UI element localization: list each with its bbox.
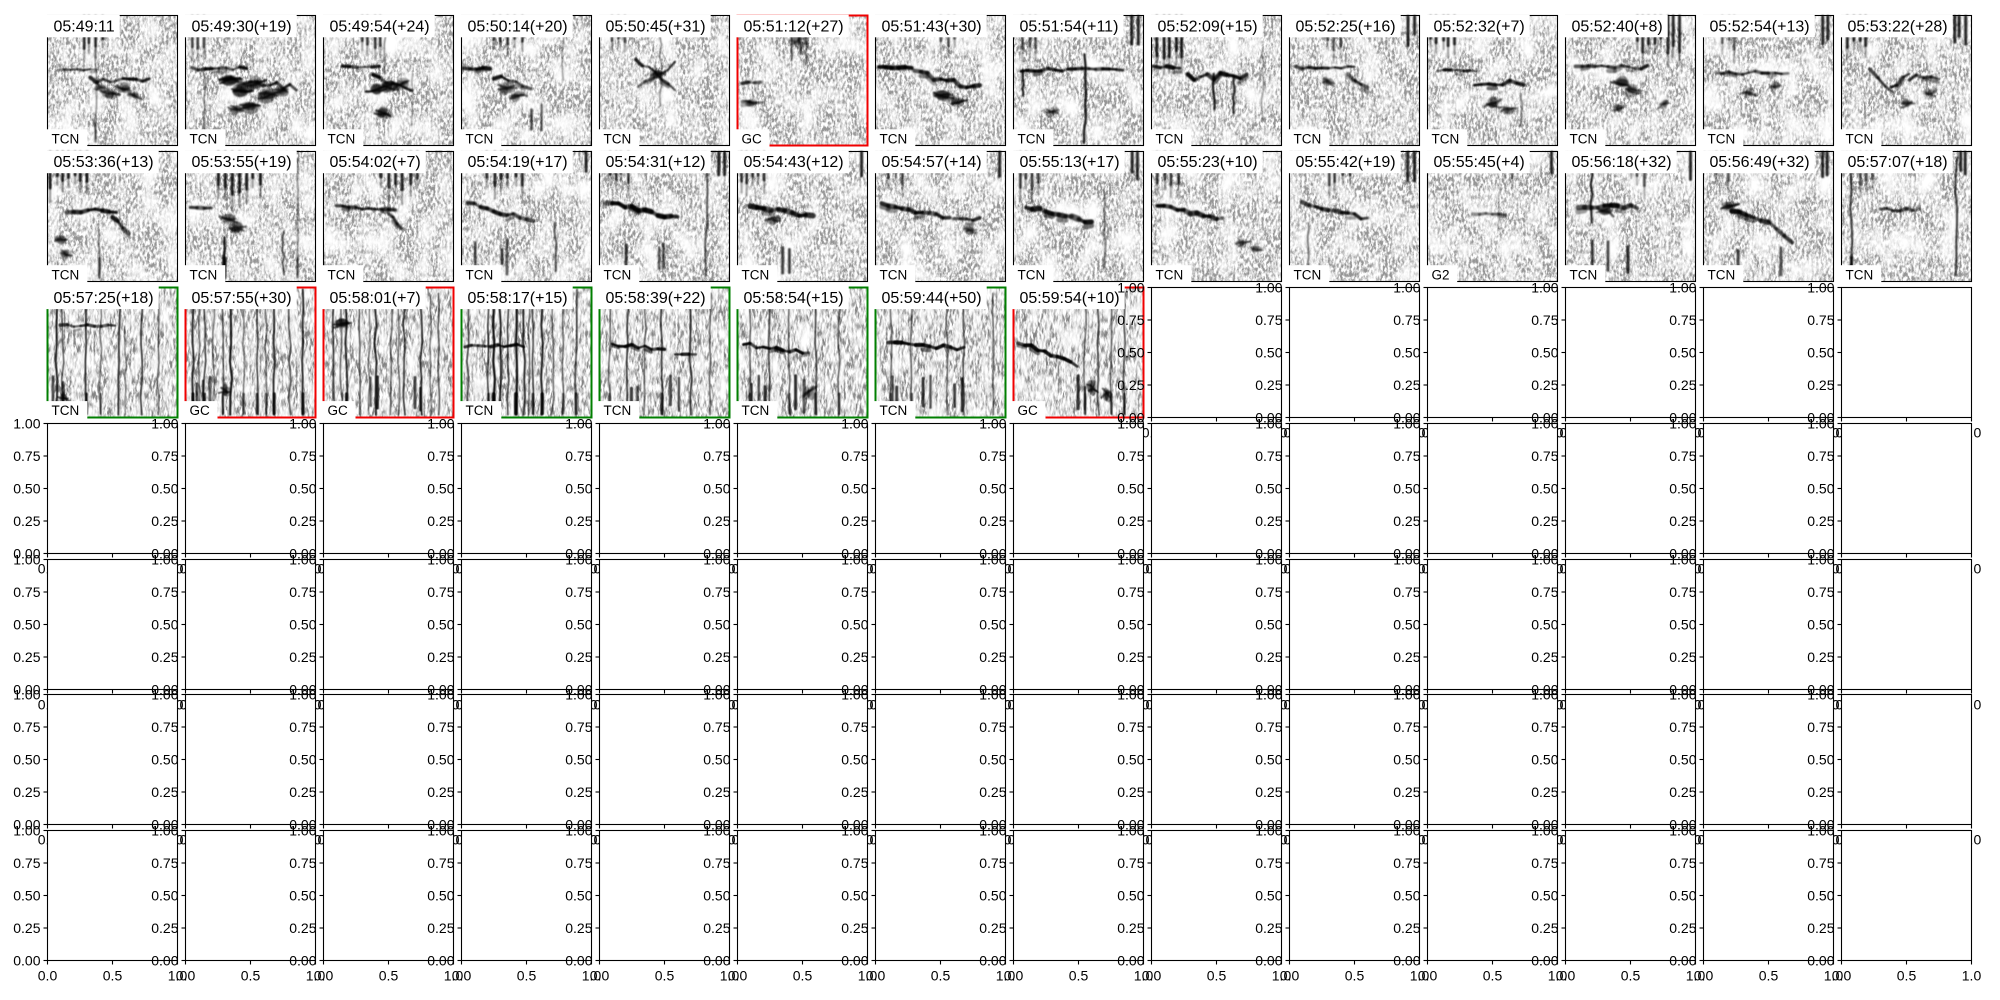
svg-text:0.5: 0.5 (241, 968, 261, 984)
svg-text:0.75: 0.75 (151, 855, 178, 871)
svg-text:0.75: 0.75 (565, 448, 592, 464)
svg-text:0.25: 0.25 (289, 649, 316, 665)
svg-text:1.00: 1.00 (1117, 552, 1144, 568)
svg-text:0.75: 0.75 (1807, 312, 1834, 328)
svg-text:TCN: TCN (328, 267, 356, 282)
svg-text:0.5: 0.5 (379, 968, 399, 984)
svg-text:0.25: 0.25 (13, 920, 40, 936)
svg-text:1.00: 1.00 (151, 416, 178, 432)
svg-text:0.75: 0.75 (1669, 448, 1696, 464)
svg-text:0.50: 0.50 (1393, 752, 1420, 768)
svg-text:0.50: 0.50 (703, 888, 730, 904)
svg-text:0.0: 0.0 (452, 968, 472, 984)
svg-text:0.25: 0.25 (979, 649, 1006, 665)
svg-text:0.00: 0.00 (13, 953, 40, 969)
svg-text:0.25: 0.25 (1117, 784, 1144, 800)
svg-text:TCN: TCN (1570, 267, 1598, 282)
svg-text:1.00: 1.00 (1255, 552, 1282, 568)
svg-text:0.00: 0.00 (1255, 953, 1282, 969)
svg-text:0.25: 0.25 (1117, 513, 1144, 529)
svg-text:0.25: 0.25 (565, 784, 592, 800)
svg-text:TCN: TCN (1294, 131, 1322, 146)
svg-text:TCN: TCN (1846, 267, 1874, 282)
svg-text:0.25: 0.25 (1393, 649, 1420, 665)
svg-text:1.00: 1.00 (289, 823, 316, 839)
svg-text:0.50: 0.50 (703, 752, 730, 768)
svg-text:0.75: 0.75 (979, 719, 1006, 735)
svg-text:0.50: 0.50 (151, 888, 178, 904)
svg-text:0.00: 0.00 (703, 953, 730, 969)
svg-text:0.0: 0.0 (1142, 968, 1162, 984)
svg-text:0.50: 0.50 (1669, 888, 1696, 904)
svg-text:0.75: 0.75 (703, 855, 730, 871)
svg-text:1.00: 1.00 (1393, 823, 1420, 839)
svg-text:0.75: 0.75 (427, 719, 454, 735)
svg-text:0.25: 0.25 (1807, 377, 1834, 393)
svg-text:0.25: 0.25 (841, 784, 868, 800)
svg-text:0.75: 0.75 (1255, 448, 1282, 464)
svg-text:1.00: 1.00 (979, 552, 1006, 568)
svg-text:0.00: 0.00 (1669, 953, 1696, 969)
svg-text:0.75: 0.75 (1807, 448, 1834, 464)
svg-text:0.75: 0.75 (979, 584, 1006, 600)
svg-text:0.25: 0.25 (13, 513, 40, 529)
svg-text:0.50: 0.50 (841, 888, 868, 904)
svg-text:1.00: 1.00 (1669, 280, 1696, 296)
svg-text:TCN: TCN (466, 131, 494, 146)
svg-text:0.50: 0.50 (841, 617, 868, 633)
svg-text:0.75: 0.75 (1531, 855, 1558, 871)
svg-text:TCN: TCN (1708, 131, 1736, 146)
svg-text:0.75: 0.75 (1669, 855, 1696, 871)
svg-text:0.5: 0.5 (1207, 968, 1227, 984)
svg-text:0.75: 0.75 (1531, 448, 1558, 464)
svg-text:0.75: 0.75 (289, 584, 316, 600)
svg-text:1.0: 1.0 (1962, 968, 1982, 984)
svg-text:0.50: 0.50 (1807, 481, 1834, 497)
svg-text:GC: GC (742, 131, 763, 146)
svg-text:0.75: 0.75 (841, 448, 868, 464)
svg-text:0.50: 0.50 (1669, 345, 1696, 361)
svg-text:1.00: 1.00 (1117, 823, 1144, 839)
svg-text:0.25: 0.25 (427, 784, 454, 800)
svg-text:0.75: 0.75 (1531, 719, 1558, 735)
svg-text:0.5: 0.5 (931, 968, 951, 984)
svg-text:0.00: 0.00 (1531, 953, 1558, 969)
svg-text:1.00: 1.00 (1807, 416, 1834, 432)
svg-text:0.50: 0.50 (151, 481, 178, 497)
svg-text:1.00: 1.00 (427, 552, 454, 568)
svg-text:TCN: TCN (1018, 267, 1046, 282)
svg-text:TCN: TCN (880, 403, 908, 418)
svg-text:0.50: 0.50 (151, 617, 178, 633)
svg-text:05:54:57(+14): 05:54:57(+14) (882, 154, 982, 171)
svg-text:0.75: 0.75 (1393, 719, 1420, 735)
svg-text:1.00: 1.00 (151, 687, 178, 703)
svg-text:0.0: 0.0 (176, 968, 196, 984)
svg-text:TCN: TCN (190, 267, 218, 282)
svg-text:0.50: 0.50 (1393, 481, 1420, 497)
svg-text:0.75: 0.75 (1255, 855, 1282, 871)
svg-text:TCN: TCN (466, 267, 494, 282)
svg-text:0.25: 0.25 (427, 513, 454, 529)
svg-text:0.75: 0.75 (1117, 719, 1144, 735)
svg-text:0.25: 0.25 (979, 920, 1006, 936)
svg-text:1.00: 1.00 (13, 416, 40, 432)
svg-text:0.75: 0.75 (13, 855, 40, 871)
svg-text:0.50: 0.50 (1669, 752, 1696, 768)
svg-text:0.50: 0.50 (1117, 888, 1144, 904)
svg-text:0.00: 0.00 (565, 953, 592, 969)
svg-text:0.25: 0.25 (151, 649, 178, 665)
svg-text:0.75: 0.75 (565, 719, 592, 735)
svg-text:05:53:36(+13): 05:53:36(+13) (54, 154, 154, 171)
svg-text:1.00: 1.00 (979, 823, 1006, 839)
svg-text:0.50: 0.50 (1531, 888, 1558, 904)
svg-text:0.75: 0.75 (565, 855, 592, 871)
svg-text:0.75: 0.75 (1255, 719, 1282, 735)
svg-text:1.00: 1.00 (1807, 552, 1834, 568)
svg-text:05:54:19(+17): 05:54:19(+17) (468, 154, 568, 171)
svg-text:05:55:42(+19): 05:55:42(+19) (1296, 154, 1396, 171)
svg-text:1.00: 1.00 (1393, 416, 1420, 432)
svg-text:1.00: 1.00 (841, 416, 868, 432)
svg-text:0.50: 0.50 (1669, 481, 1696, 497)
svg-text:TCN: TCN (1432, 131, 1460, 146)
svg-text:1.00: 1.00 (289, 552, 316, 568)
svg-text:0.0: 0.0 (728, 968, 748, 984)
svg-text:0.0: 0.0 (1556, 968, 1576, 984)
svg-text:0.50: 0.50 (427, 752, 454, 768)
svg-text:0.0: 0.0 (1004, 968, 1024, 984)
svg-text:0.25: 0.25 (1531, 377, 1558, 393)
svg-text:05:54:31(+12): 05:54:31(+12) (606, 154, 706, 171)
svg-text:0.25: 0.25 (1393, 377, 1420, 393)
svg-text:05:53:55(+19): 05:53:55(+19) (192, 154, 292, 171)
svg-text:1.00: 1.00 (1117, 280, 1144, 296)
svg-text:0.25: 0.25 (1393, 920, 1420, 936)
svg-text:0.25: 0.25 (151, 920, 178, 936)
svg-text:0.0: 0.0 (1832, 968, 1852, 984)
svg-text:0.25: 0.25 (1807, 784, 1834, 800)
svg-text:0.5: 0.5 (1759, 968, 1779, 984)
svg-text:1.00: 1.00 (979, 416, 1006, 432)
svg-text:0.25: 0.25 (703, 649, 730, 665)
svg-text:1.00: 1.00 (703, 687, 730, 703)
svg-text:05:57:07(+18): 05:57:07(+18) (1848, 154, 1948, 171)
svg-text:1.00: 1.00 (13, 823, 40, 839)
svg-text:0.50: 0.50 (703, 617, 730, 633)
svg-text:0.75: 0.75 (1255, 312, 1282, 328)
svg-text:0.50: 0.50 (1117, 617, 1144, 633)
svg-text:05:50:14(+20): 05:50:14(+20) (468, 18, 568, 35)
svg-text:0.50: 0.50 (1117, 345, 1144, 361)
svg-text:05:50:45(+31): 05:50:45(+31) (606, 18, 706, 35)
svg-text:0.50: 0.50 (289, 481, 316, 497)
svg-text:0.00: 0.00 (289, 953, 316, 969)
svg-text:0.0: 0.0 (590, 968, 610, 984)
svg-text:1.00: 1.00 (151, 552, 178, 568)
svg-text:0.75: 0.75 (1393, 312, 1420, 328)
svg-text:05:53:22(+28): 05:53:22(+28) (1848, 18, 1948, 35)
svg-text:0.75: 0.75 (841, 584, 868, 600)
svg-text:05:52:54(+13): 05:52:54(+13) (1710, 18, 1810, 35)
svg-text:TCN: TCN (742, 267, 770, 282)
svg-text:0.25: 0.25 (565, 513, 592, 529)
svg-text:G2: G2 (1432, 267, 1450, 282)
svg-text:TCN: TCN (328, 131, 356, 146)
svg-text:0.0: 0.0 (314, 968, 334, 984)
svg-text:0.0: 0.0 (38, 968, 58, 984)
svg-text:1.00: 1.00 (1531, 687, 1558, 703)
svg-text:0.75: 0.75 (151, 719, 178, 735)
svg-text:TCN: TCN (742, 403, 770, 418)
svg-text:0.75: 0.75 (13, 584, 40, 600)
svg-text:0.00: 0.00 (1117, 953, 1144, 969)
svg-text:0.50: 0.50 (1255, 345, 1282, 361)
svg-text:0.50: 0.50 (13, 752, 40, 768)
svg-text:0.75: 0.75 (427, 584, 454, 600)
svg-text:1.00: 1.00 (565, 687, 592, 703)
svg-text:0.50: 0.50 (979, 481, 1006, 497)
svg-text:1.00: 1.00 (1669, 416, 1696, 432)
svg-text:0.25: 0.25 (1669, 784, 1696, 800)
svg-text:0.00: 0.00 (841, 953, 868, 969)
svg-text:0.75: 0.75 (1807, 584, 1834, 600)
svg-text:0.50: 0.50 (565, 888, 592, 904)
svg-text:0.00: 0.00 (979, 953, 1006, 969)
svg-text:0.25: 0.25 (151, 513, 178, 529)
svg-text:0.25: 0.25 (427, 649, 454, 665)
svg-text:1.00: 1.00 (427, 823, 454, 839)
svg-text:05:49:11: 05:49:11 (54, 18, 115, 35)
svg-text:0.75: 0.75 (1117, 584, 1144, 600)
svg-text:05:52:25(+16): 05:52:25(+16) (1296, 18, 1396, 35)
svg-text:0.50: 0.50 (841, 752, 868, 768)
svg-text:0.75: 0.75 (13, 448, 40, 464)
svg-text:0.25: 0.25 (703, 920, 730, 936)
svg-text:0.50: 0.50 (1807, 752, 1834, 768)
svg-text:TCN: TCN (880, 267, 908, 282)
svg-text:0.50: 0.50 (427, 617, 454, 633)
svg-text:0.75: 0.75 (1531, 312, 1558, 328)
svg-text:0.50: 0.50 (1117, 481, 1144, 497)
svg-text:1.00: 1.00 (13, 552, 40, 568)
svg-text:0.50: 0.50 (1807, 345, 1834, 361)
svg-text:0.0: 0.0 (1418, 968, 1438, 984)
svg-text:1.00: 1.00 (151, 823, 178, 839)
svg-text:GC: GC (190, 403, 211, 418)
svg-text:1.00: 1.00 (841, 552, 868, 568)
svg-text:0.50: 0.50 (13, 481, 40, 497)
svg-text:05:59:54(+10): 05:59:54(+10) (1020, 290, 1120, 307)
svg-text:0.25: 0.25 (151, 784, 178, 800)
svg-text:0.75: 0.75 (703, 584, 730, 600)
svg-text:05:58:54(+15): 05:58:54(+15) (744, 290, 844, 307)
svg-text:GC: GC (328, 403, 349, 418)
svg-text:0.25: 0.25 (565, 920, 592, 936)
svg-text:0.50: 0.50 (979, 617, 1006, 633)
svg-text:0.25: 0.25 (1255, 784, 1282, 800)
svg-text:0.25: 0.25 (1669, 377, 1696, 393)
svg-text:0.25: 0.25 (1255, 377, 1282, 393)
svg-text:05:51:43(+30): 05:51:43(+30) (882, 18, 982, 35)
svg-text:0.75: 0.75 (841, 855, 868, 871)
svg-text:05:51:54(+11): 05:51:54(+11) (1020, 18, 1119, 35)
svg-text:0.5: 0.5 (103, 968, 123, 984)
svg-text:0.50: 0.50 (13, 888, 40, 904)
svg-text:0.25: 0.25 (703, 784, 730, 800)
svg-text:TCN: TCN (52, 403, 80, 418)
svg-text:0.25: 0.25 (1669, 513, 1696, 529)
svg-text:TCN: TCN (1156, 131, 1184, 146)
svg-text:1.00: 1.00 (841, 687, 868, 703)
svg-text:0.75: 0.75 (151, 584, 178, 600)
svg-text:0.50: 0.50 (1393, 617, 1420, 633)
svg-text:0.25: 0.25 (1393, 784, 1420, 800)
svg-text:TCN: TCN (1294, 267, 1322, 282)
svg-text:TCN: TCN (466, 403, 494, 418)
svg-text:0.5: 0.5 (517, 968, 537, 984)
svg-text:1.00: 1.00 (1117, 687, 1144, 703)
svg-text:05:49:30(+19): 05:49:30(+19) (192, 18, 292, 35)
svg-text:TCN: TCN (1018, 131, 1046, 146)
svg-text:0.25: 0.25 (703, 513, 730, 529)
svg-text:0.75: 0.75 (1117, 855, 1144, 871)
svg-text:0.75: 0.75 (565, 584, 592, 600)
svg-text:1.00: 1.00 (1255, 687, 1282, 703)
svg-text:0.25: 0.25 (289, 513, 316, 529)
svg-text:0.50: 0.50 (1255, 481, 1282, 497)
svg-text:1.00: 1.00 (565, 416, 592, 432)
svg-text:0.75: 0.75 (841, 719, 868, 735)
svg-text:0.25: 0.25 (1807, 513, 1834, 529)
svg-text:0.25: 0.25 (13, 649, 40, 665)
svg-text:1.00: 1.00 (1807, 823, 1834, 839)
svg-text:0.25: 0.25 (1255, 920, 1282, 936)
svg-text:0.75: 0.75 (289, 448, 316, 464)
svg-text:05:58:39(+22): 05:58:39(+22) (606, 290, 706, 307)
svg-text:TCN: TCN (52, 131, 80, 146)
svg-text:0.50: 0.50 (565, 481, 592, 497)
svg-text:0.00: 0.00 (1393, 953, 1420, 969)
svg-text:0.25: 0.25 (1531, 513, 1558, 529)
svg-text:05:51:12(+27): 05:51:12(+27) (744, 18, 844, 35)
svg-text:05:59:44(+50): 05:59:44(+50) (882, 290, 982, 307)
svg-text:1.00: 1.00 (1531, 416, 1558, 432)
svg-text:0.75: 0.75 (289, 719, 316, 735)
svg-text:TCN: TCN (1708, 267, 1736, 282)
svg-text:0.75: 0.75 (979, 855, 1006, 871)
svg-text:0.50: 0.50 (1531, 481, 1558, 497)
svg-text:1.00: 1.00 (1669, 823, 1696, 839)
svg-text:GC: GC (1018, 403, 1039, 418)
svg-text:1.00: 1.00 (13, 687, 40, 703)
svg-text:1.00: 1.00 (1393, 280, 1420, 296)
svg-text:0.25: 0.25 (289, 784, 316, 800)
svg-text:TCN: TCN (1570, 131, 1598, 146)
svg-text:1.00: 1.00 (289, 687, 316, 703)
svg-text:0.25: 0.25 (289, 920, 316, 936)
svg-text:1.00: 1.00 (1531, 823, 1558, 839)
svg-text:1.00: 1.00 (289, 416, 316, 432)
svg-text:0.75: 0.75 (1669, 312, 1696, 328)
svg-text:TCN: TCN (880, 131, 908, 146)
svg-text:0.0: 0.0 (1694, 968, 1714, 984)
svg-text:0.75: 0.75 (1255, 584, 1282, 600)
svg-text:TCN: TCN (604, 131, 632, 146)
svg-text:0.50: 0.50 (979, 888, 1006, 904)
svg-text:0.25: 0.25 (841, 649, 868, 665)
svg-text:0.75: 0.75 (13, 719, 40, 735)
svg-text:0.5: 0.5 (793, 968, 813, 984)
svg-text:0.50: 0.50 (1531, 345, 1558, 361)
svg-text:0.75: 0.75 (1807, 719, 1834, 735)
svg-text:0.75: 0.75 (703, 719, 730, 735)
svg-text:0.50: 0.50 (565, 617, 592, 633)
svg-text:0.50: 0.50 (427, 888, 454, 904)
svg-text:0.25: 0.25 (1531, 649, 1558, 665)
svg-text:0.50: 0.50 (1807, 888, 1834, 904)
svg-text:0.75: 0.75 (151, 448, 178, 464)
svg-text:05:56:49(+32): 05:56:49(+32) (1710, 154, 1810, 171)
svg-text:05:52:40(+8): 05:52:40(+8) (1572, 18, 1663, 35)
svg-text:0.50: 0.50 (1255, 617, 1282, 633)
svg-text:0.50: 0.50 (979, 752, 1006, 768)
svg-text:0.00: 0.00 (1807, 953, 1834, 969)
svg-text:05:58:17(+15): 05:58:17(+15) (468, 290, 568, 307)
svg-text:0.50: 0.50 (1807, 617, 1834, 633)
svg-text:0.5: 0.5 (1897, 968, 1917, 984)
svg-text:0.25: 0.25 (1117, 649, 1144, 665)
svg-text:1.00: 1.00 (841, 823, 868, 839)
svg-text:05:52:09(+15): 05:52:09(+15) (1158, 18, 1258, 35)
svg-text:0.50: 0.50 (289, 752, 316, 768)
svg-text:1.00: 1.00 (1807, 687, 1834, 703)
svg-text:0.5: 0.5 (655, 968, 675, 984)
svg-text:0.25: 0.25 (1117, 920, 1144, 936)
svg-text:0.75: 0.75 (703, 448, 730, 464)
svg-text:0.25: 0.25 (1807, 920, 1834, 936)
svg-text:1.00: 1.00 (565, 823, 592, 839)
svg-text:0.25: 0.25 (1255, 513, 1282, 529)
svg-text:1.00: 1.00 (1531, 552, 1558, 568)
svg-text:0.25: 0.25 (841, 920, 868, 936)
svg-text:1.00: 1.00 (427, 416, 454, 432)
svg-text:1.00: 1.00 (703, 552, 730, 568)
svg-text:0.25: 0.25 (1807, 649, 1834, 665)
svg-text:0.25: 0.25 (1531, 784, 1558, 800)
svg-text:1.00: 1.00 (1669, 687, 1696, 703)
svg-text:1.00: 1.00 (427, 687, 454, 703)
svg-text:0.50: 0.50 (289, 888, 316, 904)
svg-text:05:49:54(+24): 05:49:54(+24) (330, 18, 430, 35)
svg-text:0.75: 0.75 (1393, 855, 1420, 871)
svg-text:0.25: 0.25 (1531, 920, 1558, 936)
svg-text:0.50: 0.50 (703, 481, 730, 497)
svg-text:0.25: 0.25 (841, 513, 868, 529)
svg-text:0.75: 0.75 (1531, 584, 1558, 600)
svg-text:1.00: 1.00 (703, 823, 730, 839)
svg-text:0.5: 0.5 (1621, 968, 1641, 984)
svg-text:0.75: 0.75 (1393, 448, 1420, 464)
svg-text:0.50: 0.50 (1669, 617, 1696, 633)
svg-text:0.25: 0.25 (565, 649, 592, 665)
svg-text:0.50: 0.50 (151, 752, 178, 768)
svg-text:0.50: 0.50 (289, 617, 316, 633)
svg-text:1.00: 1.00 (1255, 416, 1282, 432)
svg-text:0.25: 0.25 (1669, 649, 1696, 665)
